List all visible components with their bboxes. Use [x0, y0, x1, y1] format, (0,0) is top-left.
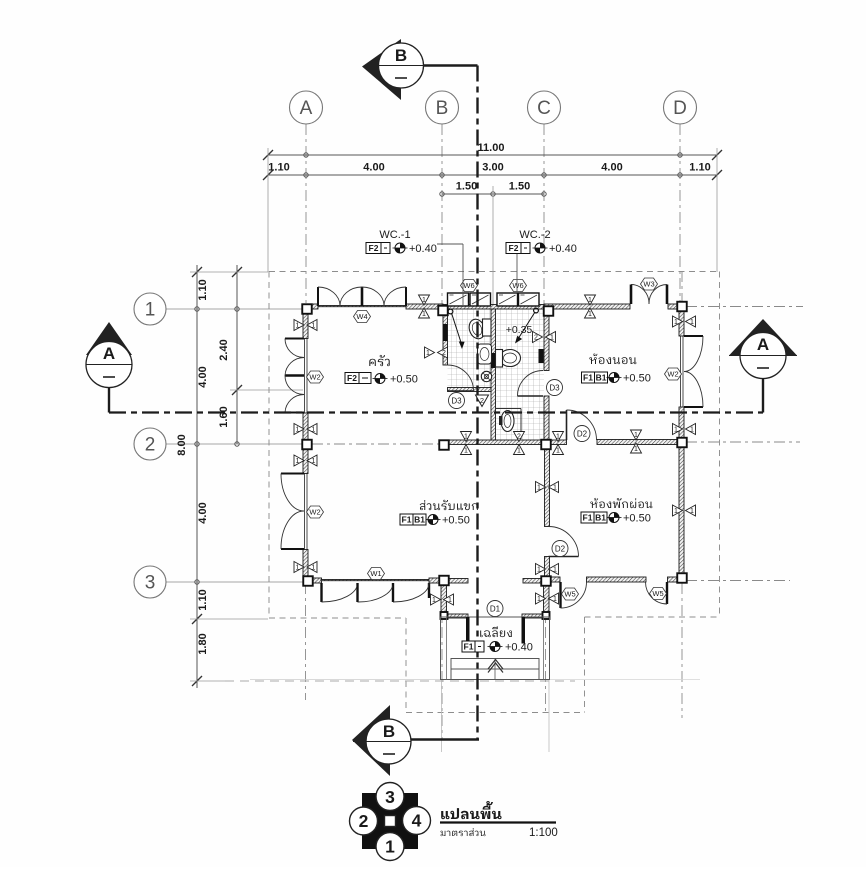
svg-text:+0.50: +0.50 — [623, 373, 651, 385]
svg-text:1.10: 1.10 — [197, 589, 209, 610]
svg-text:WC.-1: WC.-1 — [379, 229, 410, 241]
svg-text:11.00: 11.00 — [478, 142, 505, 154]
svg-text:+0.50: +0.50 — [442, 515, 470, 527]
svg-text:WC.-2: WC.-2 — [519, 229, 550, 241]
svg-text:F1: F1 — [402, 515, 412, 525]
svg-text:1: 1 — [432, 597, 436, 604]
svg-text:1: 1 — [690, 319, 694, 326]
svg-text:F2: F2 — [509, 243, 519, 253]
svg-text:B1: B1 — [595, 513, 606, 523]
svg-text:2: 2 — [359, 811, 369, 831]
svg-text:D2: D2 — [577, 429, 588, 438]
svg-text:D3: D3 — [451, 396, 462, 405]
svg-text:4.00: 4.00 — [197, 502, 209, 523]
svg-text:2: 2 — [534, 335, 538, 342]
svg-text:1: 1 — [312, 323, 316, 330]
svg-text:1: 1 — [464, 434, 468, 441]
svg-text:1: 1 — [553, 596, 557, 603]
svg-text:A: A — [103, 344, 115, 363]
svg-text:2: 2 — [145, 435, 156, 456]
svg-text:A: A — [757, 335, 769, 354]
svg-text:1: 1 — [517, 448, 521, 455]
svg-text:W5: W5 — [652, 589, 663, 598]
svg-text:1: 1 — [385, 837, 395, 857]
svg-text:1: 1 — [634, 432, 638, 439]
svg-text:1.60: 1.60 — [218, 406, 230, 427]
svg-text:3: 3 — [145, 573, 156, 594]
svg-text:D3: D3 — [549, 383, 560, 392]
svg-text:1: 1 — [296, 565, 300, 572]
svg-text:1: 1 — [550, 335, 554, 342]
svg-text:1: 1 — [537, 485, 541, 492]
svg-text:W3: W3 — [643, 280, 654, 289]
svg-text:1: 1 — [553, 567, 557, 574]
svg-text:8.00: 8.00 — [176, 434, 188, 455]
svg-text:1: 1 — [422, 297, 426, 304]
svg-text:2.40: 2.40 — [218, 339, 230, 360]
svg-text:4.00: 4.00 — [197, 366, 209, 387]
svg-text:B: B — [436, 98, 449, 119]
svg-text:2: 2 — [517, 434, 521, 441]
svg-text:1.10: 1.10 — [197, 279, 209, 300]
svg-text:W2: W2 — [667, 370, 678, 379]
svg-text:4: 4 — [412, 811, 422, 831]
svg-text:W2: W2 — [309, 508, 320, 517]
svg-text:1: 1 — [312, 458, 316, 465]
svg-text:1: 1 — [553, 485, 557, 492]
svg-text:1: 1 — [690, 508, 694, 515]
svg-text:3: 3 — [385, 787, 395, 807]
svg-text:1: 1 — [422, 311, 426, 318]
svg-text:1.10: 1.10 — [268, 162, 289, 174]
svg-text:F1: F1 — [583, 373, 593, 383]
svg-text:1: 1 — [296, 427, 300, 434]
svg-text:1: 1 — [537, 596, 541, 603]
svg-text:B1: B1 — [414, 515, 425, 525]
svg-text:1: 1 — [674, 508, 678, 515]
svg-text:B1: B1 — [596, 373, 607, 383]
svg-text:+0.40: +0.40 — [549, 243, 577, 255]
svg-text:1: 1 — [296, 458, 300, 465]
svg-text:1: 1 — [588, 297, 592, 304]
svg-text:A: A — [300, 98, 313, 119]
svg-text:+0.50: +0.50 — [623, 513, 651, 525]
svg-text:+0.40: +0.40 — [505, 642, 533, 654]
svg-text:W5: W5 — [564, 590, 575, 599]
svg-text:1: 1 — [296, 323, 300, 330]
svg-text:4.00: 4.00 — [601, 162, 622, 174]
svg-text:C: C — [537, 98, 551, 119]
svg-text:D2: D2 — [555, 544, 566, 553]
svg-text:1: 1 — [426, 350, 430, 357]
svg-text:1: 1 — [634, 446, 638, 453]
svg-text:W4: W4 — [356, 312, 367, 321]
svg-text:1: 1 — [556, 448, 560, 455]
svg-text:1: 1 — [556, 434, 560, 441]
svg-text:W6: W6 — [512, 281, 523, 290]
svg-text:1.50: 1.50 — [509, 181, 530, 193]
svg-text:W6: W6 — [463, 281, 474, 290]
svg-text:W2: W2 — [309, 373, 320, 382]
svg-text:F1: F1 — [464, 642, 474, 652]
svg-text:B: B — [383, 722, 395, 741]
svg-text:4.00: 4.00 — [363, 162, 384, 174]
svg-text:3.00: 3.00 — [482, 162, 503, 174]
svg-text:D1: D1 — [490, 604, 501, 613]
svg-text:+0.40: +0.40 — [409, 243, 437, 255]
svg-text:1: 1 — [312, 565, 316, 572]
svg-text:1: 1 — [448, 597, 452, 604]
svg-text:1: 1 — [312, 427, 316, 434]
svg-text:1: 1 — [145, 300, 156, 321]
svg-text:1: 1 — [690, 427, 694, 434]
svg-text:1:100: 1:100 — [529, 827, 558, 839]
svg-text:W1: W1 — [370, 569, 381, 578]
svg-text:1: 1 — [537, 567, 541, 574]
svg-text:1: 1 — [588, 311, 592, 318]
svg-text:F1: F1 — [583, 513, 593, 523]
svg-text:F2: F2 — [347, 373, 357, 383]
svg-text:B: B — [395, 46, 407, 65]
svg-text:D: D — [673, 98, 687, 119]
svg-text:1: 1 — [674, 319, 678, 326]
svg-text:2: 2 — [480, 396, 484, 405]
svg-text:1.80: 1.80 — [197, 633, 209, 654]
svg-text:+0.35: +0.35 — [506, 324, 533, 336]
svg-text:2: 2 — [442, 350, 446, 357]
svg-text:+0.50: +0.50 — [390, 374, 418, 386]
svg-text:1: 1 — [674, 427, 678, 434]
svg-text:1: 1 — [464, 448, 468, 455]
svg-text:1.50: 1.50 — [456, 181, 477, 193]
svg-text:1.10: 1.10 — [689, 162, 710, 174]
svg-text:F2: F2 — [369, 243, 379, 253]
